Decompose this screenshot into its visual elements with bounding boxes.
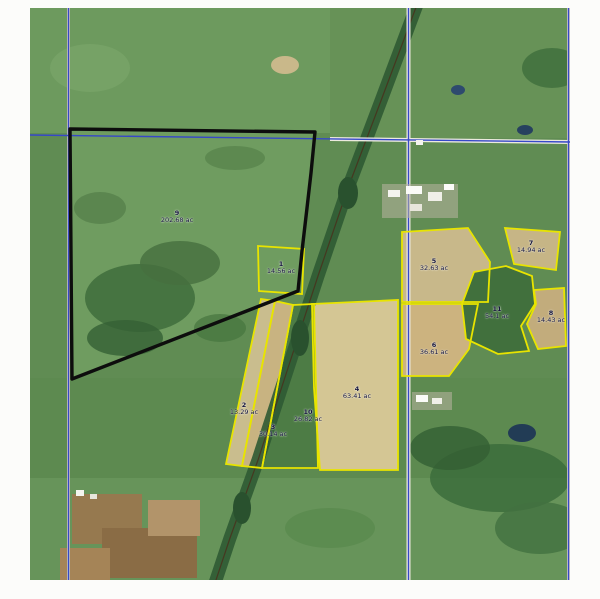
aerial-map: 9 202.68 ac 1 14.56 ac 2 13.29 ac 3 30.1… (30, 8, 570, 580)
aerial-layers (30, 8, 570, 580)
